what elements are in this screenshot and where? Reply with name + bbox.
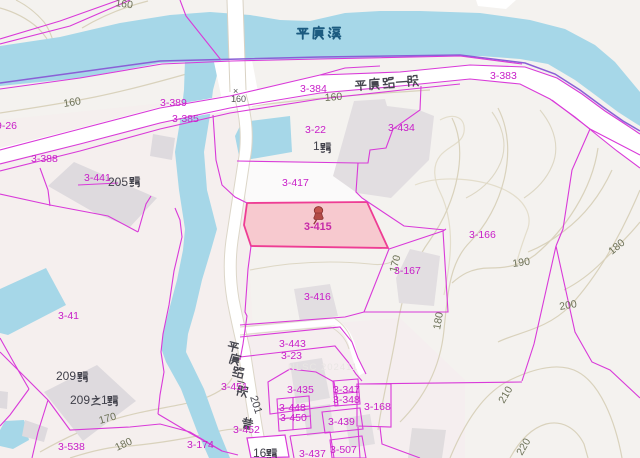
svg-text:209: 209 <box>56 369 76 383</box>
svg-text:1: 1 <box>313 139 320 153</box>
svg-text:3-389: 3-389 <box>160 97 187 109</box>
svg-text:1: 1 <box>101 393 108 407</box>
svg-text:3-22: 3-22 <box>305 124 326 136</box>
svg-text:3-166: 3-166 <box>469 229 496 241</box>
svg-text:3-507: 3-507 <box>330 444 357 456</box>
svg-text:3-451: 3-451 <box>221 381 248 393</box>
svg-text:16: 16 <box>253 446 267 458</box>
svg-text:3-435: 3-435 <box>287 384 314 396</box>
svg-text:9-26: 9-26 <box>0 120 17 132</box>
svg-text:3-538: 3-538 <box>58 441 85 453</box>
svg-text:190: 190 <box>512 256 531 270</box>
svg-text:3-434: 3-434 <box>388 122 415 134</box>
svg-text:160: 160 <box>324 91 342 104</box>
svg-text:3-384: 3-384 <box>300 83 327 95</box>
svg-text:3-383: 3-383 <box>490 70 517 82</box>
svg-text:3-416: 3-416 <box>304 291 331 303</box>
svg-text:3-174: 3-174 <box>187 439 214 451</box>
svg-text:3-452: 3-452 <box>233 424 260 436</box>
svg-text:3-450: 3-450 <box>280 412 307 424</box>
svg-text:3-415: 3-415 <box>304 221 332 233</box>
svg-text:3-168: 3-168 <box>364 401 391 413</box>
svg-text:3-443: 3-443 <box>279 338 306 350</box>
svg-text:NLSC 202411: NLSC 202411 <box>288 362 358 373</box>
svg-text:160: 160 <box>231 94 246 104</box>
svg-text:3-385: 3-385 <box>172 113 199 125</box>
svg-text:3-23: 3-23 <box>281 350 302 362</box>
svg-text:3-441: 3-441 <box>84 172 111 184</box>
svg-text:3-417: 3-417 <box>282 177 309 189</box>
svg-text:3-439: 3-439 <box>328 416 355 428</box>
svg-text:3-437: 3-437 <box>299 448 326 458</box>
svg-text:3-348: 3-348 <box>333 394 360 406</box>
svg-text:205: 205 <box>108 175 128 189</box>
svg-text:3-41: 3-41 <box>58 310 79 322</box>
svg-text:209: 209 <box>70 393 90 407</box>
svg-text:3-388: 3-388 <box>31 153 58 165</box>
